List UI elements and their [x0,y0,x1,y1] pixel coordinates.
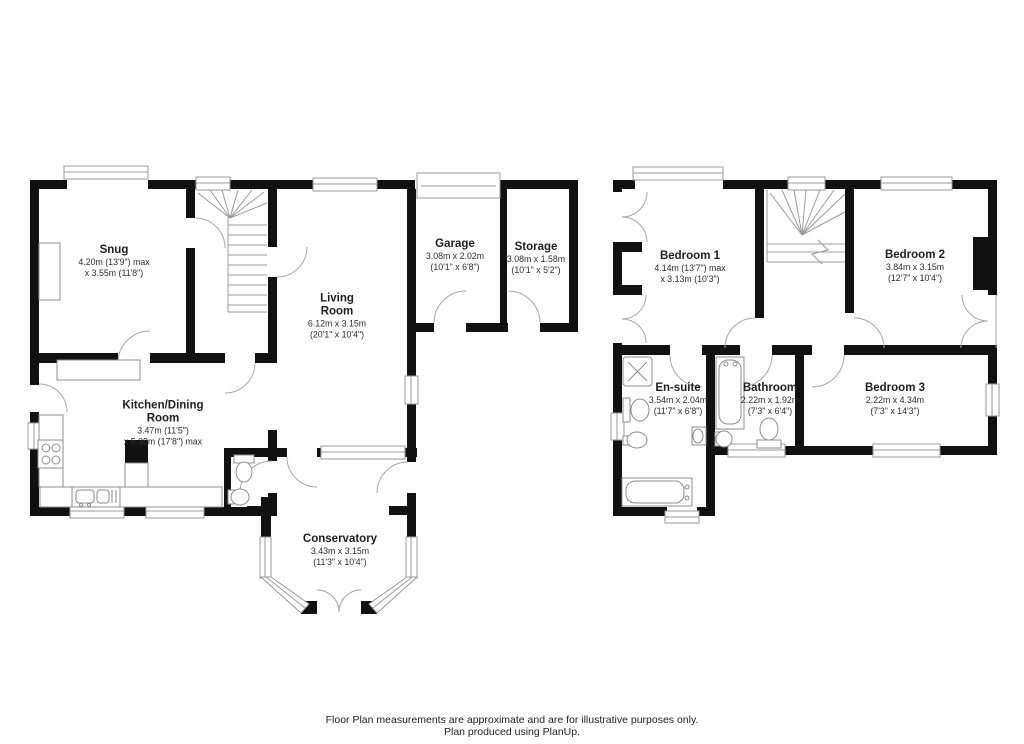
room-label-storage: Storage 3.08m x 1.58m (10'1" x 5'2") [507,241,565,277]
bathroom-title: Bathroom [741,382,799,395]
conservatory-left-angled-window [261,577,309,613]
bedroom3-door-arc [812,355,844,387]
hall-window [196,177,230,190]
room-label-kitchen-dining: Kitchen/Dining Room 3.47m (11'5") x 5.38… [113,400,213,449]
first-floor-plan [611,167,999,523]
room-label-living-room: Living Room 6.12m x 3.15m (20'1" x 10'4"… [308,293,366,342]
ensuite-bidet [623,432,647,448]
bedroom3-title: Bedroom 3 [865,382,925,395]
room-label-bedroom2: Bedroom 2 3.84m x 3.15m (12'7" x 10'4") [885,249,945,285]
garage-title: Garage [426,238,484,251]
bedroom1-wardrobe1-door-arc2 [622,217,647,242]
bedroom2-title: Bedroom 2 [885,249,945,262]
snug-title: Snug [78,244,149,257]
ensuite-basin [692,427,706,445]
room-label-conservatory: Conservatory 3.43m x 3.15m (11'3" x 10'4… [303,533,377,569]
room-label-ensuite: En-suite 3.54m x 2.04m (11'7" x 6'8") [649,382,707,418]
conservatory-french-door-right-arc [339,590,361,612]
living-room-door-arc [277,247,307,277]
bedroom2-door-arc [854,318,884,348]
snug-kitchen-door-arc [118,331,150,363]
ground-floor-stairs [198,190,267,312]
conservatory-side-door-arc [377,462,408,493]
ensuite-bath [622,478,692,506]
kitchen-dining-title: Kitchen/Dining Room [113,400,213,426]
snug-window [64,166,148,179]
bedroom2-closet-door-arc [962,295,988,321]
bedroom1-wardrobe2-door-arc [622,295,646,319]
bedroom1-wardrobe1-door-arc [622,192,647,217]
landing-window [788,177,825,190]
bedroom2-closet-door-arc2 [961,321,988,348]
storage-title: Storage [507,241,565,254]
footer-disclaimer: Floor Plan measurements are approximate … [0,714,1024,739]
wc-toilet [234,455,254,482]
ensuite-bottom-window [665,511,699,523]
room-label-garage: Garage 3.08m x 2.02m (10'1" x 6'8") [426,238,484,274]
kitchen-sink [72,487,120,507]
kitchen-worktop-bottom [40,487,222,507]
conservatory-title: Conservatory [303,533,377,546]
ensuite-side-window [611,413,624,440]
bathroom-bath [716,357,744,429]
snug-alcove [39,243,60,300]
ground-floor-windows [28,166,500,613]
conservatory-right-angled-window [369,577,417,613]
bedroom3-side-window [986,384,999,416]
bathroom-basin [715,431,732,447]
conservatory-left-window [260,537,271,578]
garage-door-panel [417,173,500,198]
snug-door-arc [195,218,225,248]
living-room-side-window [405,376,418,404]
floorplan-drawing [0,0,1024,744]
bedroom1-wardrobe2-door-arc2 [622,319,646,343]
conservatory-entry-door-arc [287,457,317,487]
bedroom2-window [881,177,952,190]
conservatory-right-window [406,537,417,578]
storage-door-arc [508,291,540,323]
bedroom1-window [633,167,723,180]
room-label-bathroom: Bathroom 2.22m x 1.92m (7'3" x 6'4") [741,382,799,418]
ground-floor-fixtures [38,243,254,507]
ensuite-title: En-suite [649,382,707,395]
conservatory-french-door-left-arc [317,590,339,612]
garage-side-door-arc [434,291,466,323]
bedroom2-wardrobe-block [973,237,988,290]
living-room-top-window [313,178,377,191]
shower [623,357,652,386]
wc-basin [228,489,249,505]
room-label-snug: Snug 4.20m (13'9") max x 3.55m (11'8") [78,244,149,280]
first-floor-fixtures [622,357,781,506]
floorplan-page: Snug 4.20m (13'9") max x 3.55m (11'8") L… [0,0,1024,744]
hob [38,440,63,468]
bedroom1-title: Bedroom 1 [654,250,725,263]
room-label-bedroom1: Bedroom 1 4.14m (13'7") max x 3.13m (10'… [654,250,725,286]
bathroom-toilet [757,418,781,448]
kitchen-exterior-door-arc [39,384,67,412]
ensuite-toilet [623,398,649,422]
living-room-title: Living Room [308,293,366,319]
footer-line-1: Floor Plan measurements are approximate … [0,714,1024,726]
bedroom1-door-arc [725,318,755,348]
hall-kitchen-door-arc [225,363,255,393]
first-floor-stairs [767,190,845,264]
living-room-bottom-window [321,446,405,459]
kitchen-worktop-top [57,360,140,380]
room-label-bedroom3: Bedroom 3 2.22m x 4.34m (7'3" x 14'3") [865,382,925,418]
bedroom3-bottom-window [873,444,940,457]
footer-line-2: Plan produced using PlanUp. [0,726,1024,738]
first-floor-doors [622,192,988,387]
